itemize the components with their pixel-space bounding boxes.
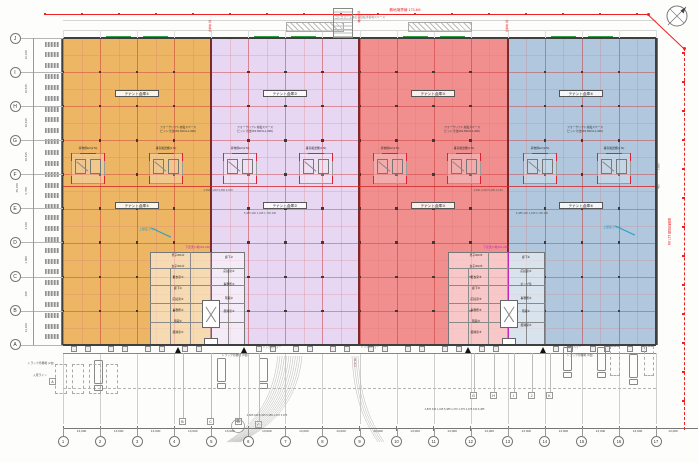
column-dot: [432, 241, 434, 243]
grid-extension-line: [20, 345, 63, 346]
column-dot: [395, 276, 397, 278]
pod-red-mark: [71, 153, 72, 161]
left-dim-label: 10,815: [25, 149, 29, 165]
column-dot: [618, 139, 620, 141]
pod-red-mark: [456, 153, 472, 154]
equipment-label: 荷物用EV(2.5t): [216, 147, 264, 150]
entrance-triangle-icon: [175, 347, 181, 353]
column-dot: [284, 139, 286, 141]
green-accent-top: [254, 36, 279, 37]
column-dot: [544, 71, 546, 73]
lift-machine-icon: [392, 159, 403, 174]
core-wall: [448, 303, 545, 304]
green-accent-left: [61, 38, 62, 345]
grid-bubble-bottom: 5: [206, 436, 217, 447]
column-dot: [618, 71, 620, 73]
column-dot: [544, 207, 546, 209]
column-dot: [544, 105, 546, 107]
grid-extension-line: [20, 174, 63, 175]
lift-machine-icon: [542, 159, 553, 174]
truck-icon: [597, 347, 606, 371]
column-dot: [136, 276, 138, 278]
dock-shelter-hatch: [45, 74, 59, 79]
grid-bubble-bottom: 11: [428, 436, 439, 447]
column-dot: [284, 241, 286, 243]
boundary-dot: [682, 226, 684, 228]
grid-extension-line: [20, 140, 63, 141]
bottom-dim-label: 13,000: [106, 430, 132, 434]
column-dot: [618, 241, 620, 243]
tenant-zone-label: テナント倉庫④: [559, 90, 603, 97]
dock-leveler: [108, 346, 114, 352]
grid-bubble-bottom: 9: [354, 436, 365, 447]
pod-red-mark: [373, 153, 374, 161]
left-dim-label: 10,815: [25, 81, 29, 97]
dock-shelter-hatch: [45, 237, 59, 242]
column-dot: [321, 276, 323, 278]
column-dot: [136, 105, 138, 107]
room-label: 女子WC③: [452, 265, 500, 268]
column-dot: [581, 71, 583, 73]
core-wall: [526, 268, 527, 345]
grid-extension-line: [20, 72, 63, 73]
grid-bubble-bottom: 10: [391, 436, 402, 447]
pod-red-mark: [373, 176, 374, 184]
column-dot: [618, 207, 620, 209]
column-dot: [173, 139, 175, 141]
bottom-dim-label: 13,000: [328, 430, 354, 434]
column-dot: [395, 241, 397, 243]
pod-red-mark: [480, 153, 481, 161]
column-dot: [99, 241, 101, 243]
grid-bubble-bottom: 8: [317, 436, 328, 447]
dock-leveler: [71, 346, 77, 352]
room-label: 廊下②: [212, 256, 246, 259]
stall-letter: B: [179, 418, 186, 425]
truck-stall-outline: [106, 364, 118, 394]
column-dot: [284, 276, 286, 278]
boundary-dot: [303, 13, 305, 15]
right-dim-label: 1,800: [657, 160, 660, 174]
column-dot: [469, 71, 471, 73]
dock-leveler: [479, 346, 485, 352]
dock-shelter-hatch: [45, 96, 59, 101]
green-accent-top: [106, 36, 131, 37]
stall-letter: J: [528, 392, 535, 399]
lift-machine-icon: [616, 159, 627, 174]
column-dot: [581, 139, 583, 141]
stall-letter: H: [490, 392, 497, 399]
room-label: 廊下①: [154, 287, 202, 290]
boundary-dot: [647, 13, 650, 16]
column-dot: [99, 310, 101, 312]
dock-leveler-label: ドックレベラー: [350, 346, 390, 349]
column-dot: [618, 276, 620, 278]
pod-red-mark: [299, 153, 300, 161]
bottom-dim-label: 13,000: [439, 430, 465, 434]
truck-cab-icon: [563, 372, 572, 378]
column-dot: [321, 207, 323, 209]
green-accent-top: [143, 36, 168, 37]
dock-shelter-hatch: [45, 215, 59, 220]
pod-red-mark: [308, 153, 324, 154]
dim-cluster: 5,485 430 1,345 1,730 430: [225, 212, 295, 215]
bottom-dim-label: 13,000: [550, 430, 576, 434]
room-label: 男子WC③: [452, 254, 500, 257]
dock-shelter-hatch: [45, 193, 59, 198]
column-dot: [581, 105, 583, 107]
room-label: 風除室①: [154, 331, 202, 334]
pod-red-mark: [597, 153, 598, 161]
column-dot: [432, 105, 434, 107]
grid-bubble-bottom: 3: [132, 436, 143, 447]
grid-bubble-bottom: 6: [243, 436, 254, 447]
forklift-note-line2: ピット寸法(W1,500×L1,000): [435, 130, 489, 133]
pod-red-mark: [232, 153, 248, 154]
equipment-label: 垂直搬送機(1.5t): [142, 147, 190, 150]
dock-shelter-hatch: [45, 128, 59, 133]
column-dot: [544, 241, 546, 243]
room-label: 応接室②: [212, 270, 246, 273]
lift-machine-icon: [90, 159, 101, 174]
column-dot: [136, 173, 138, 175]
dock-shelter-hatch: [45, 150, 59, 155]
room-label: 応接室①: [154, 298, 202, 301]
lift-machine-icon: [318, 159, 329, 174]
room-label: 更衣室③: [452, 276, 500, 279]
truck-stall-outline: [644, 346, 654, 376]
dim-cluster: 4,350 3,200 5,450 4,150: [168, 189, 268, 192]
dock-leveler: [159, 346, 165, 352]
boundary-dot: [525, 13, 527, 15]
boundary-dot: [682, 342, 684, 344]
dock-shelter-hatch: [45, 291, 59, 296]
grid-bubble-bottom: 12: [465, 436, 476, 447]
left-dim-label: 13,100: [25, 320, 29, 336]
boundary-dot: [488, 13, 490, 15]
pod-red-mark: [71, 176, 72, 184]
room-label: 応接室④: [509, 270, 543, 273]
pod-red-mark: [332, 153, 333, 161]
truck-stall-outline: [89, 364, 101, 394]
dock-shelter-hatch: [45, 161, 59, 166]
boundary-dot: [682, 197, 684, 199]
equipment-label: 荷物用EV(2.5t): [366, 147, 414, 150]
grid-bubble-bottom: 7: [280, 436, 291, 447]
boundary-dot: [682, 110, 684, 112]
stall-letter: I: [510, 392, 517, 399]
equipment-label: 垂直搬送機(1.5t): [292, 147, 340, 150]
truck-stall-outline: [72, 364, 84, 394]
shoe-wash-note: 下足洗い場(W1,200): [162, 246, 234, 249]
tenant-zone-label: テナント倉庫②: [263, 202, 307, 209]
pod-red-mark: [597, 176, 598, 184]
fire-zone-label: 防火区画: [206, 20, 211, 31]
column-dot: [395, 71, 397, 73]
fire-tank-label: 防火水槽: [355, 11, 360, 22]
room-label: 風除室③: [452, 331, 500, 334]
left-dim-label: 10,815: [25, 115, 29, 131]
boundary-dot: [118, 13, 120, 15]
column-dot: [395, 310, 397, 312]
grid-bubble-left: H: [10, 101, 21, 112]
pod-red-mark: [382, 153, 398, 154]
dock-leveler: [442, 346, 448, 352]
truck-stall-outline: [55, 364, 67, 394]
room-label: 廊下③: [452, 287, 500, 290]
lift-machine-icon: [466, 159, 477, 174]
left-dim-label: 12,100: [25, 47, 29, 63]
column-dot: [247, 241, 249, 243]
boundary-dot: [682, 400, 684, 402]
pod-red-mark: [523, 153, 524, 161]
boundary-dot: [636, 13, 638, 15]
column-dot: [247, 105, 249, 107]
column-dot: [99, 105, 101, 107]
truck-cab-icon: [597, 372, 606, 378]
pod-red-mark: [256, 153, 257, 161]
boundary-dot: [682, 284, 684, 286]
column-dot: [321, 241, 323, 243]
column-dot: [173, 105, 175, 107]
left-dim-label: 4,100: [25, 217, 29, 233]
boundary-dot: [682, 168, 684, 170]
boundary-dot: [682, 313, 684, 315]
room-label: 事務所①: [154, 309, 202, 312]
room-label: 男子WC①: [154, 254, 202, 257]
pod-red-mark: [223, 153, 224, 161]
canopy-callout: 上部庇ライン: [126, 228, 170, 232]
stall-letter: A: [49, 378, 56, 385]
green-accent-top: [551, 36, 576, 37]
column-dot: [395, 139, 397, 141]
dock-shelter-hatch: [45, 42, 59, 47]
room-label: 更衣室①: [154, 276, 202, 279]
pod-red-mark: [256, 176, 257, 184]
grid-bubble-left: B: [10, 305, 21, 316]
column-dot: [544, 139, 546, 141]
entrance-triangle-icon: [465, 347, 471, 353]
grid-bubble-bottom: 2: [95, 436, 106, 447]
grid-extension-line: [20, 106, 63, 107]
tenant-partition-wall: [358, 38, 360, 345]
left-total-dim: 65,150: [16, 178, 20, 198]
dock-shelter-hatch: [45, 85, 59, 90]
dock-shelter-hatch: [45, 334, 59, 339]
site-boundary-top-label: 敷地境界線 173.4M: [360, 8, 450, 12]
dock-shelter-hatch: [45, 117, 59, 122]
boundary-dot: [599, 13, 601, 15]
dock-leveler: [122, 346, 128, 352]
column-dot: [432, 139, 434, 141]
green-accent-top: [403, 36, 428, 37]
exterior-stair-icon: [333, 8, 353, 38]
room-label: 廊下④: [509, 256, 543, 259]
grid-extension-line: [20, 242, 63, 243]
pod-red-mark: [406, 153, 407, 161]
lift-machine-icon: [168, 159, 179, 174]
grid-bubble-bottom: 15: [576, 436, 587, 447]
column-dot: [581, 173, 583, 175]
dock-shelter-hatch: [45, 226, 59, 231]
dock-shelter-hatch: [45, 248, 59, 253]
grid-bubble-bottom: 17: [651, 436, 662, 447]
tenant-zone-label: テナント倉庫③: [411, 90, 455, 97]
column-dot: [618, 105, 620, 107]
dock-line-red: [63, 186, 656, 187]
right-dim-label: 495: [657, 180, 660, 194]
column-dot: [136, 139, 138, 141]
stall-letter: K: [546, 392, 553, 399]
column-dot: [581, 276, 583, 278]
dock-shelter-hatch: [45, 63, 59, 68]
tenant-zone-label: テナント倉庫①: [115, 202, 159, 209]
room-label: 階段④: [509, 310, 543, 313]
column-dot: [173, 241, 175, 243]
dock-leveler-label: ドックレベラー: [252, 346, 292, 349]
bottom-dim-label: 13,000: [587, 430, 613, 434]
forklift-note-line2: ピット寸法(W1,500×L1,000): [558, 130, 612, 133]
left-dim-label: 6,700: [25, 183, 29, 199]
room-label: 階段③: [452, 320, 500, 323]
grid-bubble-left: G: [10, 135, 21, 146]
column-dot: [469, 105, 471, 107]
pod-red-mark: [480, 176, 481, 184]
lift-machine-icon: [242, 159, 253, 174]
green-accent-top: [588, 36, 613, 37]
dock-leveler-label: ドックレベラー: [552, 346, 592, 349]
green-accent-top: [440, 36, 465, 37]
tenant-zone-label: テナント倉庫④: [559, 202, 603, 209]
bottom-dim-label: 13,000: [365, 430, 391, 434]
column-dot: [581, 310, 583, 312]
dock-leveler: [419, 346, 425, 352]
room-label: 応接室③: [452, 298, 500, 301]
column-dot: [99, 207, 101, 209]
pod-red-mark: [223, 176, 224, 184]
site-boundary-right-label: 敷地境界線 117.9M: [664, 218, 670, 245]
boundary-dot: [682, 371, 684, 373]
truck-icon: [563, 347, 572, 371]
bottom-dim-label: 13,000: [624, 430, 650, 434]
dock-shelter-hatch: [45, 302, 59, 307]
boundary-dot: [266, 13, 268, 15]
dock-shelter-hatch: [45, 324, 59, 329]
pod-red-mark: [630, 176, 631, 184]
fire-zone-label: 防火区画: [503, 20, 508, 31]
compass-icon: [663, 3, 691, 31]
dim-cluster: 4,825 345 1,345 5,385 1,370 1,375 4,375 …: [352, 408, 557, 411]
truck-icon: [629, 354, 638, 378]
bottom-dim-label: 13,000: [143, 430, 169, 434]
forklift-note-line2: ピット寸法(W1,500×L1,000): [228, 130, 282, 133]
pod-red-mark: [556, 176, 557, 184]
column-dot: [321, 310, 323, 312]
column-dot: [469, 207, 471, 209]
pod-red-mark: [556, 153, 557, 161]
room-label: 風除室②: [212, 310, 246, 313]
dock-shelter-hatch: [45, 313, 59, 318]
entrance-triangle-icon: [540, 347, 546, 353]
pod-red-mark: [447, 153, 448, 161]
column-dot: [284, 71, 286, 73]
pod-red-mark: [523, 176, 524, 184]
column-dot: [136, 71, 138, 73]
column-dot: [247, 139, 249, 141]
column-dot: [581, 241, 583, 243]
dock-leveler: [182, 346, 188, 352]
boundary-dot: [682, 81, 684, 83]
grid-extension-line: [20, 38, 63, 39]
column-dot: [136, 310, 138, 312]
dock-shelter-hatch: [45, 259, 59, 264]
room-label: 階段②: [212, 297, 246, 300]
bottom-dim-label: 13,000: [476, 430, 502, 434]
grid-bubble-left: J: [10, 33, 21, 44]
column-dot: [469, 241, 471, 243]
pod-red-mark: [532, 153, 548, 154]
canopy-callout: 上部庇ライン: [590, 226, 634, 230]
boundary-dot: [192, 13, 194, 15]
bicycle-parking-hatch: [408, 22, 472, 32]
column-dot: [247, 310, 249, 312]
room-label: 事務所②: [212, 283, 246, 286]
grid-bubble-bottom: 16: [613, 436, 624, 447]
bottom-dim-label: 13,000: [254, 430, 280, 434]
bottom-dim-label: 13,000: [217, 430, 243, 434]
left-dim-line: [33, 38, 34, 345]
truck-cab-icon: [629, 379, 638, 385]
pod-red-mark: [80, 153, 96, 154]
column-dot: [432, 71, 434, 73]
tenant-zone-label: テナント倉庫②: [263, 90, 307, 97]
dock-leveler: [456, 346, 462, 352]
core-wall: [228, 268, 229, 345]
turning-circle-icon: [228, 416, 250, 438]
equipment-label: 荷物用EV(2.5t): [516, 147, 564, 150]
column-dot: [395, 105, 397, 107]
dim-cluster: 5,485 430 1,345 1,730 430: [497, 212, 567, 215]
column-dot: [284, 310, 286, 312]
grid-bubble-left: E: [10, 203, 21, 214]
dock-leveler: [405, 346, 411, 352]
pod-red-mark: [182, 153, 183, 161]
bottom-dim-label: 13,000: [180, 430, 206, 434]
column-dot: [173, 71, 175, 73]
pod-red-mark: [182, 176, 183, 184]
grid-bubble-bottom: 1: [58, 436, 69, 447]
column-dot: [618, 310, 620, 312]
boundary-dot: [451, 13, 453, 15]
pod-red-mark: [158, 153, 174, 154]
forklift-note-line2: ピット寸法(W1,500×L1,000): [151, 130, 205, 133]
room-label: 女子WC①: [154, 265, 202, 268]
grid-extension-line: [20, 208, 63, 209]
room-label: 事務所③: [452, 309, 500, 312]
grid-extension-line: [20, 311, 63, 312]
boundary-dot: [155, 13, 157, 15]
pod-red-mark: [149, 176, 150, 184]
boundary-dot: [81, 13, 83, 15]
grid-extension-line: [20, 277, 63, 278]
column-dot: [321, 105, 323, 107]
dock-shelter-hatch: [45, 107, 59, 112]
boundary-dot: [414, 13, 416, 15]
dock-shelter-hatch: [45, 269, 59, 274]
boundary-dot: [44, 13, 46, 15]
grid-bubble-left: I: [10, 67, 21, 78]
left-dim-label: 1,800: [25, 252, 29, 268]
